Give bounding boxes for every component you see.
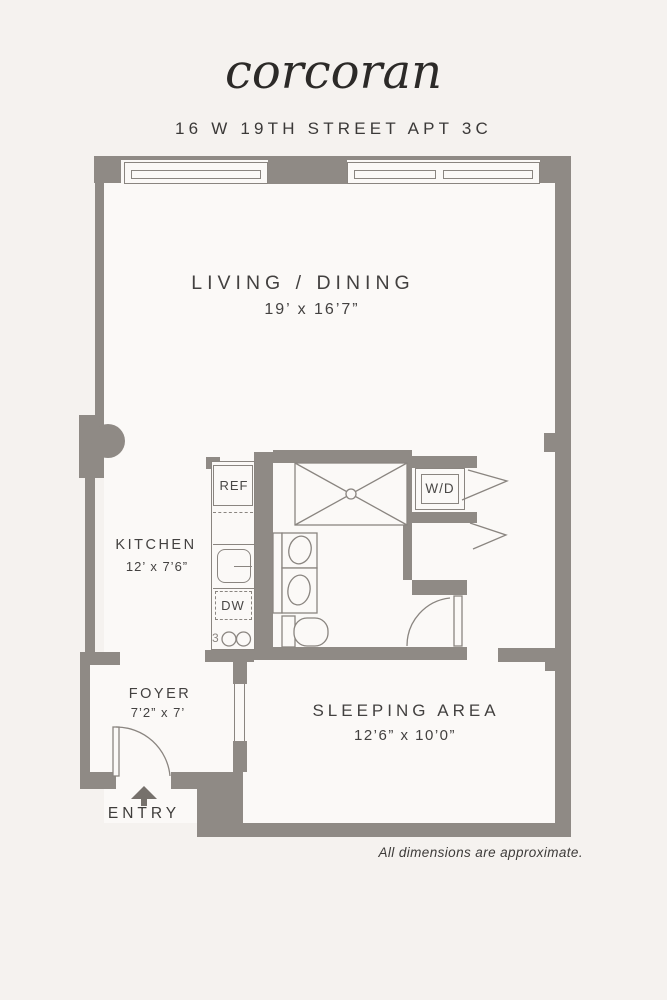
- window-right-sash-b: [443, 170, 533, 179]
- brand-logo: corcoran: [0, 44, 667, 100]
- stove-mark: 3: [212, 631, 219, 645]
- counter-dashed-line-1: [213, 505, 253, 506]
- wall-foyer-right-upper: [233, 660, 247, 684]
- wall-bath-jut: [412, 580, 467, 595]
- wall-bottom: [243, 823, 571, 837]
- wall-corner-top-left: [94, 156, 121, 183]
- wall-bath-top: [273, 450, 412, 463]
- counter-dashed-line-2: [213, 512, 253, 513]
- room-dims-living: 19’ x 16’7”: [264, 301, 359, 319]
- wall-corridor-notch: [545, 662, 558, 671]
- entry-label: ENTRY: [108, 805, 180, 823]
- wall-wd-mid: [403, 512, 477, 523]
- wall-foyer-top-stub: [80, 652, 120, 665]
- refrigerator-label: REF: [220, 478, 249, 493]
- wall-corridor-bottom: [498, 648, 555, 662]
- room-dims-kitchen: 12’ x 7’6”: [126, 559, 188, 574]
- counter-divider-1: [213, 544, 254, 545]
- wall-step-block: [197, 772, 243, 837]
- room-label-sleeping: SLEEPING AREA: [312, 701, 499, 721]
- wall-wd-top: [403, 456, 477, 468]
- wall-right: [555, 183, 571, 823]
- dishwasher-label: DW: [221, 598, 245, 613]
- wall-foyer-bottom-left: [80, 772, 116, 789]
- footer-disclaimer: All dimensions are approximate.: [379, 845, 584, 860]
- room-dims-sleeping: 12’6” x 10’0”: [354, 727, 456, 744]
- wall-left-mid: [85, 478, 95, 656]
- doorway-jamb-right: [244, 684, 245, 741]
- wall-kitchen-bath: [254, 452, 273, 660]
- doorway-jamb-left: [234, 684, 235, 741]
- wall-foyer-bottom-right: [171, 772, 197, 789]
- wall-corner-top-right: [540, 156, 571, 183]
- wall-foyer-left: [80, 665, 90, 773]
- room-label-kitchen: KITCHEN: [115, 537, 196, 553]
- wall-foyer-right-lower: [233, 741, 247, 772]
- room-label-foyer: FOYER: [129, 686, 191, 702]
- wall-left-upper: [95, 183, 104, 418]
- room-dims-foyer: 7’2” x 7’: [131, 705, 186, 720]
- washer-dryer-label: W/D: [425, 481, 454, 496]
- wall-window-pier: [268, 156, 347, 184]
- listing-address: 16 W 19TH STREET APT 3C: [0, 119, 667, 139]
- floor-plan-page: corcoran 16 W 19TH STREET APT 3C: [0, 0, 667, 1000]
- window-right-sash-a: [354, 170, 436, 179]
- counter-divider-2: [213, 588, 254, 589]
- column-circle: [91, 424, 125, 458]
- wall-bath-bottom: [272, 647, 467, 660]
- wall-closet-left: [403, 523, 412, 580]
- window-left-sash: [131, 170, 261, 179]
- sink-tick: [234, 566, 252, 567]
- room-label-living: LIVING / DINING: [191, 272, 414, 295]
- wall-right-stub: [544, 433, 555, 452]
